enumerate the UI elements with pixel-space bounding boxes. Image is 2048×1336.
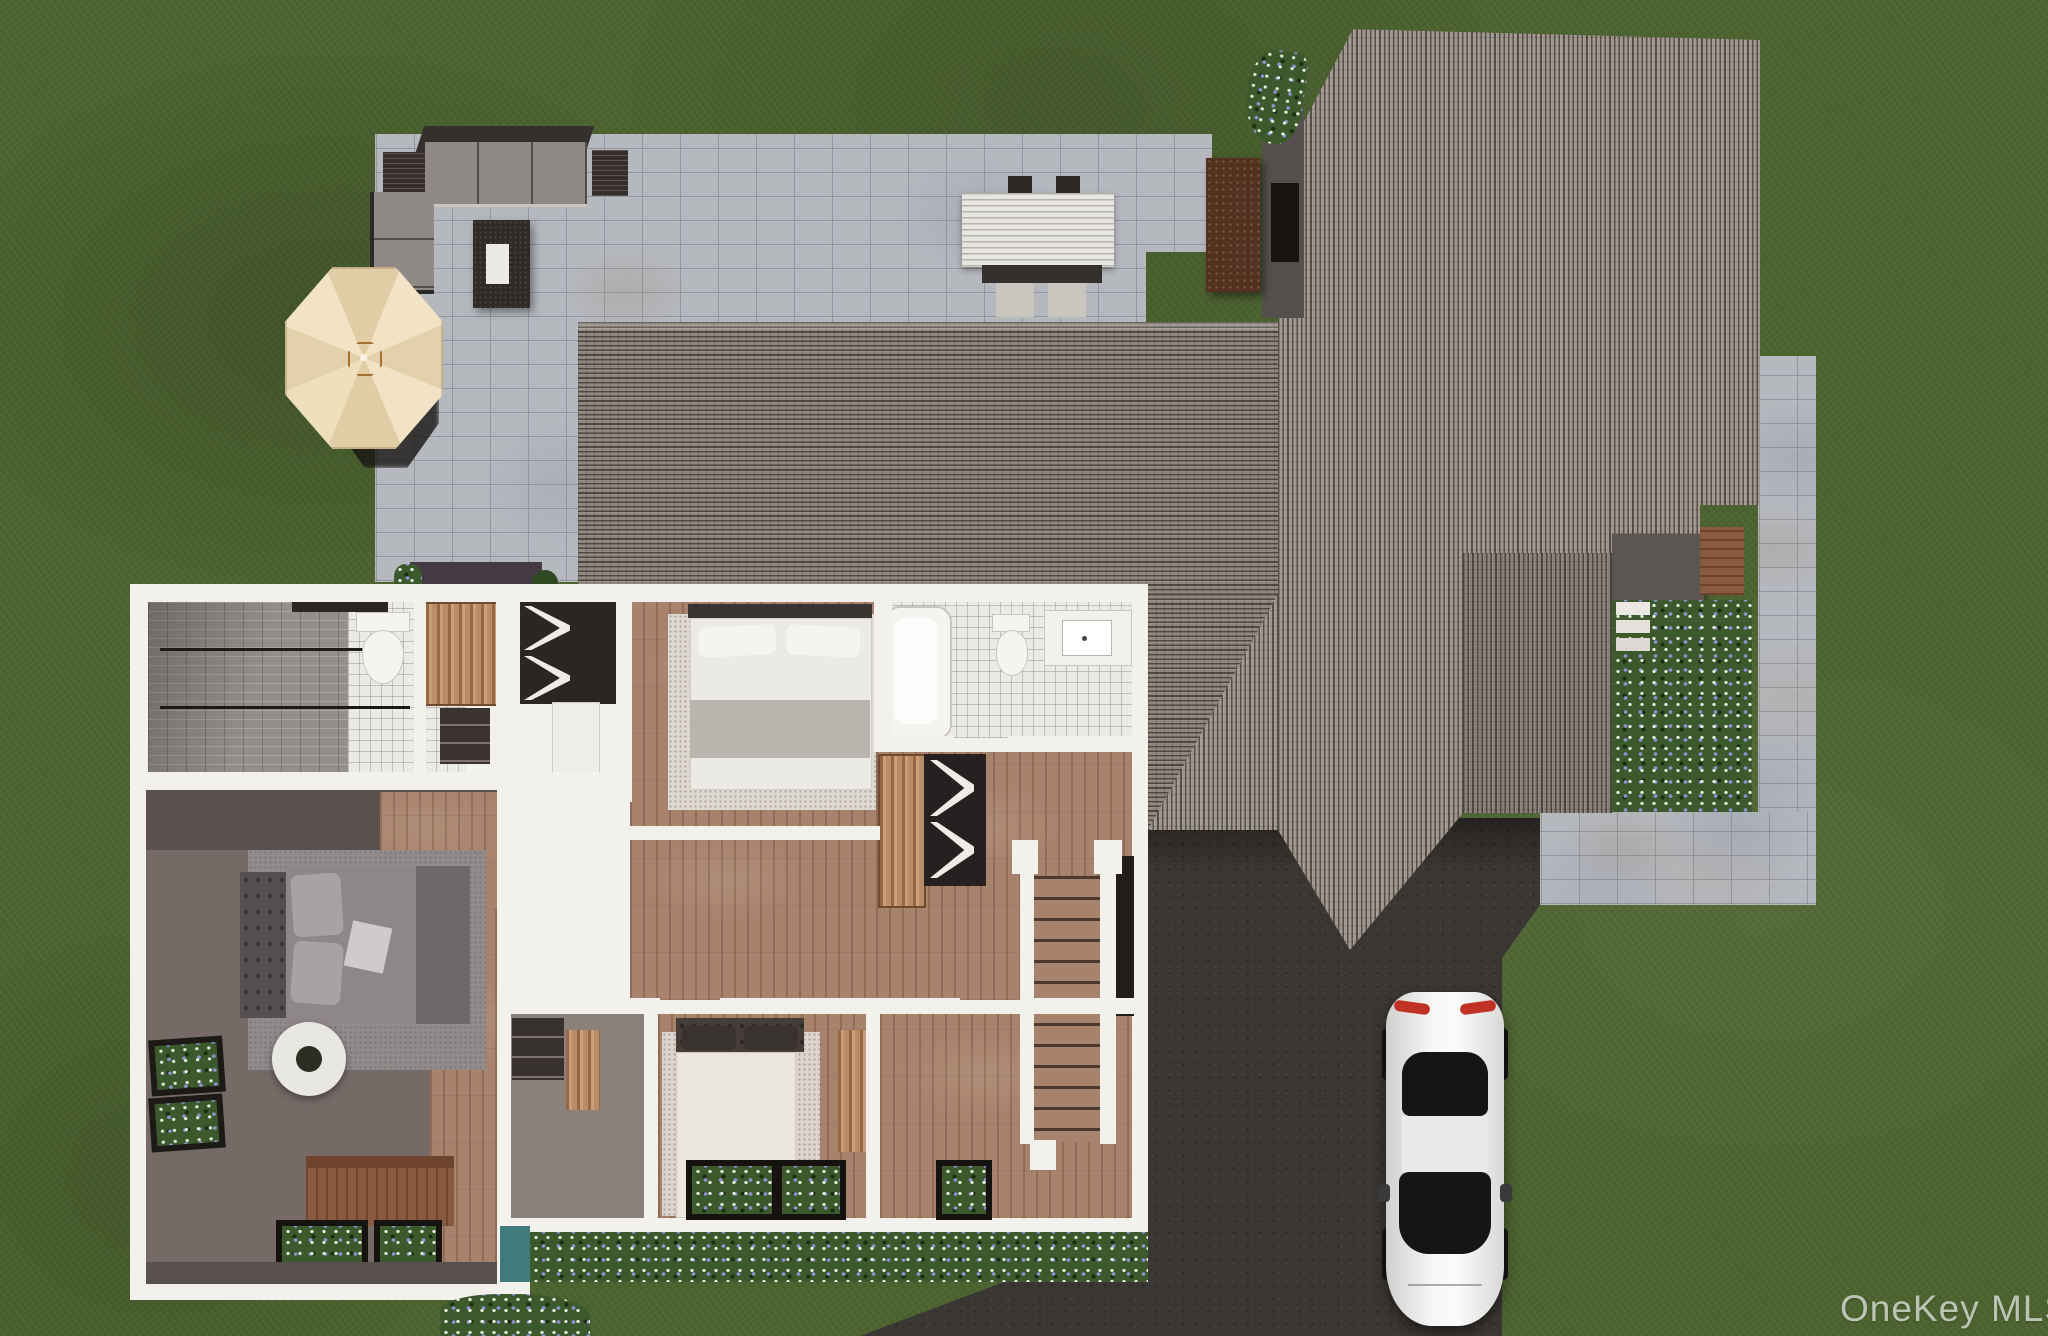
bedroom3-wardrobe: [838, 1030, 868, 1152]
master-headboard: [240, 872, 286, 1018]
dresser: [440, 708, 490, 764]
bed2-pillow: [785, 624, 860, 658]
shower-glass-line: [160, 706, 410, 709]
bed2-headboard: [688, 604, 872, 618]
interior-wall: [880, 736, 954, 752]
porch-step: [1616, 602, 1650, 615]
stair-newel: [1030, 1140, 1056, 1170]
table-plant: [296, 1046, 322, 1072]
grill-counter: [1206, 158, 1260, 292]
vanity-sink: [1062, 620, 1112, 656]
master-pillow: [290, 940, 344, 1005]
dining-table: [962, 193, 1114, 267]
main-roof: [578, 322, 1278, 594]
landing-cabinet: [566, 1030, 600, 1110]
car-rear-window: [1402, 1052, 1488, 1116]
porch-roof: [1612, 534, 1704, 600]
interior-wall: [497, 790, 511, 1300]
master-wall-bottom: [146, 1262, 497, 1284]
bed2-pillow: [697, 624, 776, 658]
interior-wall: [866, 1014, 880, 1232]
floor-window: [776, 1160, 846, 1220]
walkway-landing: [1540, 812, 1816, 905]
car: [1386, 988, 1504, 1332]
master-window: [148, 1093, 226, 1152]
watermark: OneKey MLS: [1840, 1288, 2048, 1330]
dining-chair: [1048, 283, 1086, 317]
master-bath-shower: [148, 602, 348, 774]
toilet2-bowl: [996, 630, 1028, 676]
garage-roof-lower-facet: [1463, 553, 1613, 813]
side-table: [383, 152, 425, 194]
bed2-blanket: [690, 700, 870, 758]
master-pillow: [290, 872, 344, 937]
floor-window: [686, 1160, 778, 1220]
blanket-chest: [306, 1156, 454, 1226]
side-table: [592, 150, 628, 196]
main-roof-ridge-highlight: [578, 322, 1278, 330]
bedroom2-bench: [552, 702, 600, 774]
car-mirror: [1378, 1184, 1390, 1202]
interior-wall: [146, 772, 630, 790]
interior-wall: [497, 998, 660, 1014]
wardrobe-cabinet: [424, 602, 500, 706]
south-flower-bed: [530, 1232, 1148, 1282]
master-window: [148, 1035, 226, 1096]
dining-chair: [996, 283, 1034, 317]
interior-wall: [496, 602, 520, 774]
car-mirror: [1500, 1184, 1512, 1202]
bathtub-basin: [894, 618, 938, 724]
teal-accent-wall: [500, 1226, 530, 1282]
car-windshield: [1399, 1172, 1491, 1254]
corner-flower-bed: [440, 1294, 590, 1336]
interior-wall: [874, 602, 892, 752]
porch-deck: [1700, 527, 1744, 595]
stair-void: [1114, 856, 1134, 1016]
closet: [518, 602, 618, 704]
stair-stringer: [1100, 842, 1116, 1144]
stair-newel: [1094, 840, 1122, 874]
porch-step: [1616, 638, 1650, 651]
aerial-floor-plan-rendering: OneKey MLS: [0, 0, 2048, 1336]
hall-cabinet: [878, 754, 926, 908]
dining-chairback: [1056, 176, 1080, 194]
master-throw: [416, 866, 470, 1024]
umbrella-pole: [360, 354, 367, 361]
car-hood-line: [1408, 1284, 1482, 1286]
bath-window: [292, 602, 388, 612]
wall-window: [1271, 183, 1299, 262]
stair-newel: [1012, 840, 1038, 874]
vanity-faucet: [1082, 636, 1087, 641]
interior-wall: [1020, 998, 1148, 1014]
fire-table-tray: [486, 244, 509, 284]
interior-wall: [630, 826, 880, 840]
sofa-seat: [425, 142, 587, 207]
bed3-pillow: [744, 1026, 798, 1050]
hallway-floor: [630, 828, 876, 1000]
interior-wall: [1008, 736, 1132, 752]
interior-wall: [414, 602, 426, 774]
interior-wall: [644, 1014, 658, 1232]
dining-chairs-row: [982, 265, 1102, 283]
car-roof: [1402, 1116, 1488, 1172]
porch-step: [1616, 620, 1650, 633]
toilet: [356, 612, 410, 632]
landing-dresser: [512, 1018, 564, 1080]
dining-chairback: [1008, 176, 1032, 194]
interior-wall: [720, 998, 960, 1014]
floor-window: [936, 1160, 992, 1220]
bed3-pillow: [682, 1026, 736, 1050]
stair-stringer: [1020, 842, 1034, 1144]
